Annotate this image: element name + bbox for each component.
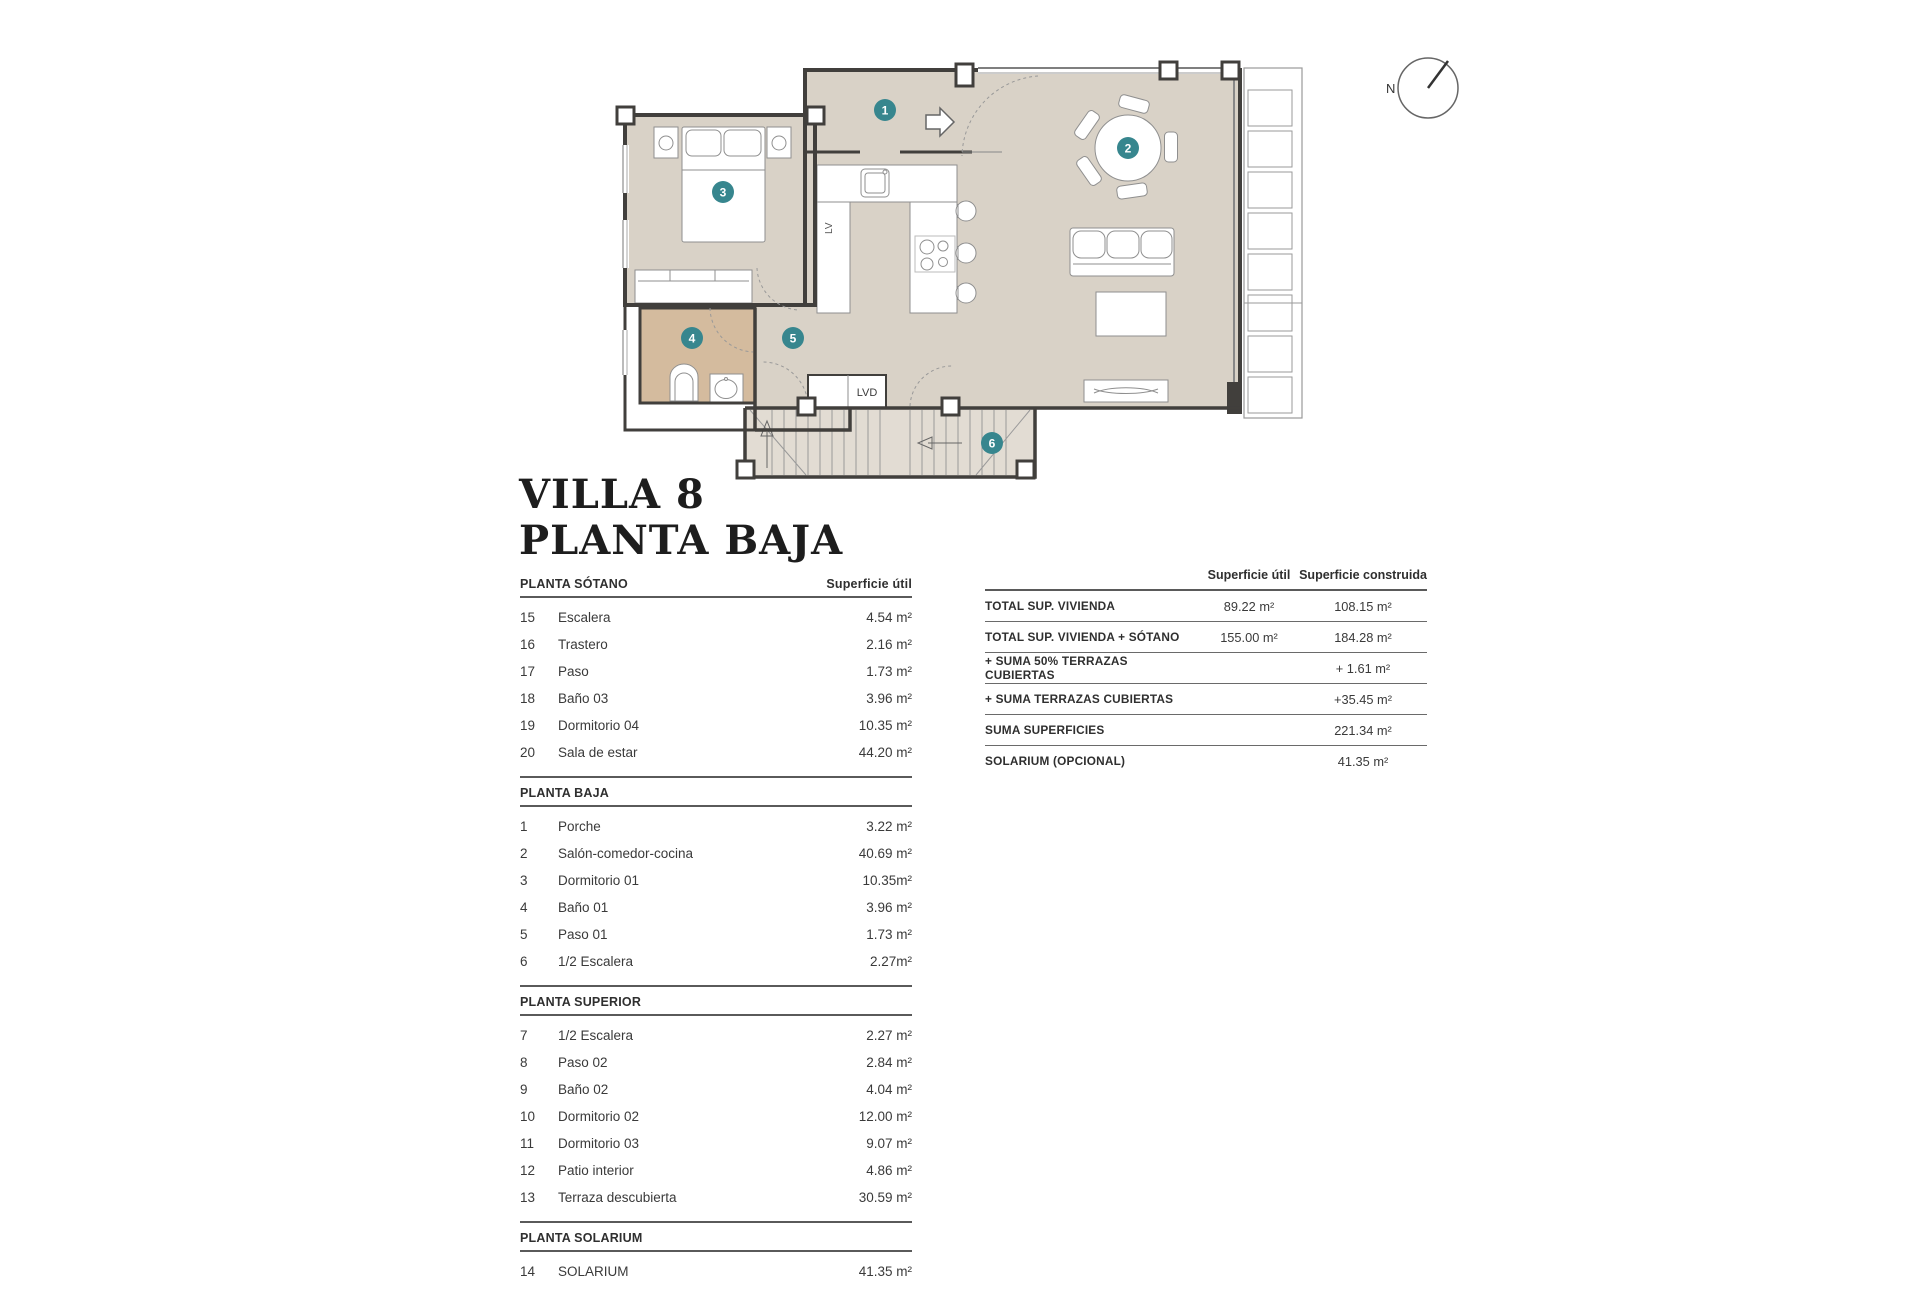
room-name: Baño 03: [558, 691, 866, 706]
title-line-2: PLANTA BAJA: [519, 518, 843, 564]
area-row: 15Escalera4.54 m²: [520, 604, 912, 631]
room-name: Trastero: [558, 637, 866, 652]
room-area: 9.07 m²: [866, 1136, 912, 1151]
compass-icon: N: [1386, 58, 1458, 118]
section-planta-sotano: PLANTA SÓTANOSuperficie útil15Escalera4.…: [520, 577, 912, 774]
room-area: 2.27 m²: [866, 1028, 912, 1043]
area-row: 9Baño 024.04 m²: [520, 1076, 912, 1103]
room-number: 5: [520, 927, 558, 942]
column-header-superficie-util: Superficie útil: [826, 577, 912, 591]
room-number: 11: [520, 1136, 558, 1151]
room-number: 4: [520, 900, 558, 915]
area-row: 71/2 Escalera2.27 m²: [520, 1022, 912, 1049]
room-area: 41.35 m²: [859, 1264, 912, 1279]
totals-label: + SUMA TERRAZAS CUBIERTAS: [985, 692, 1199, 706]
area-row: 17Paso1.73 m²: [520, 658, 912, 685]
area-row: 14SOLARIUM41.35 m²: [520, 1258, 912, 1285]
room-number: 14: [520, 1264, 558, 1279]
totals-table-header: Superficie útil Superficie construida: [985, 568, 1427, 591]
room-name: 1/2 Escalera: [558, 954, 870, 969]
room-name: Terraza descubierta: [558, 1190, 859, 1205]
page-title: VILLA 8 PLANTA BAJA: [519, 472, 843, 564]
value-superficie-construida: 221.34 m²: [1299, 723, 1427, 738]
section-planta-solarium: PLANTA SOLARIUM14SOLARIUM41.35 m²: [520, 1221, 912, 1293]
room-name: Sala de estar: [558, 745, 859, 760]
section-rows: 71/2 Escalera2.27 m²8Paso 022.84 m²9Baño…: [520, 1016, 912, 1219]
room-badge-1: 1: [874, 99, 896, 121]
room-number: 17: [520, 664, 558, 679]
room-badge-6: 6: [981, 432, 1003, 454]
section-header: PLANTA SOLARIUM: [520, 1223, 912, 1252]
room-badge-number: 3: [720, 186, 727, 200]
pillow: [686, 130, 721, 156]
room-area: 1.73 m²: [866, 664, 912, 679]
hob: [915, 236, 955, 272]
room-badge-number: 5: [790, 332, 797, 346]
section-rows: 1Porche3.22 m²2Salón-comedor-cocina40.69…: [520, 807, 912, 983]
room-area: 4.04 m²: [866, 1082, 912, 1097]
section-header: PLANTA SUPERIOR: [520, 987, 912, 1016]
room-name: Dormitorio 02: [558, 1109, 859, 1124]
totals-row-suma-superficies: SUMA SUPERFICIES221.34 m²: [985, 715, 1427, 746]
room-number: 16: [520, 637, 558, 652]
section-title: PLANTA BAJA: [520, 786, 609, 800]
totals-row-suma-50-terrazas-cubiertas: + SUMA 50% TERRAZAS CUBIERTAS+ 1.61 m²: [985, 653, 1427, 684]
room-number: 19: [520, 718, 558, 733]
area-row: 61/2 Escalera2.27m²: [520, 948, 912, 975]
room-name: Dormitorio 01: [558, 873, 862, 888]
room-name: Dormitorio 03: [558, 1136, 866, 1151]
room-number: 6: [520, 954, 558, 969]
nightstand-left: [654, 127, 678, 158]
area-row: 18Baño 033.96 m²: [520, 685, 912, 712]
room-name: Baño 01: [558, 900, 866, 915]
area-row: 5Paso 011.73 m²: [520, 921, 912, 948]
tv-console: [1084, 380, 1168, 402]
laundry: LVD: [808, 375, 886, 408]
laundry-label: LVD: [857, 387, 878, 399]
area-row: 2Salón-comedor-cocina40.69 m²: [520, 840, 912, 867]
totals-label: SOLARIUM (OPCIONAL): [985, 754, 1199, 768]
totals-row-total-sup-vivienda: TOTAL SUP. VIVIENDA89.22 m²108.15 m²: [985, 591, 1427, 622]
section-planta-baja: PLANTA BAJA1Porche3.22 m²2Salón-comedor-…: [520, 776, 912, 983]
section-title: PLANTA SÓTANO: [520, 577, 628, 591]
value-superficie-construida: + 1.61 m²: [1299, 661, 1427, 676]
value-superficie-util: 155.00 m²: [1199, 630, 1299, 645]
value-superficie-construida: +35.45 m²: [1299, 692, 1427, 707]
totals-label: TOTAL SUP. VIVIENDA + SÓTANO: [985, 630, 1199, 644]
section-header: PLANTA BAJA: [520, 778, 912, 807]
areas-table: PLANTA SÓTANOSuperficie útil15Escalera4.…: [520, 577, 912, 1293]
room-name: Patio interior: [558, 1163, 866, 1178]
room-name: Porche: [558, 819, 866, 834]
bar-stools: [956, 201, 976, 303]
section-title: PLANTA SUPERIOR: [520, 995, 641, 1009]
terrace-steps: [1244, 68, 1302, 418]
room-number: 13: [520, 1190, 558, 1205]
title-line-1: VILLA 8: [519, 472, 843, 518]
room-name: SOLARIUM: [558, 1264, 859, 1279]
coffee-table: [1096, 292, 1166, 336]
room-number: 12: [520, 1163, 558, 1178]
room-badge-3: 3: [712, 181, 734, 203]
totals-label: + SUMA 50% TERRAZAS CUBIERTAS: [985, 654, 1199, 682]
column-header-superficie-util: Superficie útil: [1199, 568, 1299, 582]
area-row: 4Baño 013.96 m²: [520, 894, 912, 921]
section-rows: 15Escalera4.54 m²16Trastero2.16 m²17Paso…: [520, 598, 912, 774]
nightstand-right: [767, 127, 791, 158]
value-superficie-util: 89.22 m²: [1199, 599, 1299, 614]
room-area: 4.54 m²: [866, 610, 912, 625]
section-title: PLANTA SOLARIUM: [520, 1231, 642, 1245]
areas-table-sections: PLANTA SÓTANOSuperficie útil15Escalera4.…: [520, 577, 912, 1293]
room-number: 15: [520, 610, 558, 625]
room-number: 7: [520, 1028, 558, 1043]
page: { "title": { "line1": "VILLA 8", "line2"…: [0, 0, 1920, 1280]
room-number: 20: [520, 745, 558, 760]
room-name: Escalera: [558, 610, 866, 625]
sofa: [1070, 228, 1174, 276]
room-badge-number: 1: [882, 104, 889, 118]
room-number: 3: [520, 873, 558, 888]
room-name: Baño 02: [558, 1082, 866, 1097]
room-number: 2: [520, 846, 558, 861]
room-area: 12.00 m²: [859, 1109, 912, 1124]
room-area: 1.73 m²: [866, 927, 912, 942]
dishwasher-label: LV: [824, 222, 835, 234]
room-number: 18: [520, 691, 558, 706]
room-badge-number: 6: [989, 437, 996, 451]
area-row: 10Dormitorio 0212.00 m²: [520, 1103, 912, 1130]
section-rows: 14SOLARIUM41.35 m²: [520, 1252, 912, 1293]
area-row: 12Patio interior4.86 m²: [520, 1157, 912, 1184]
totals-label: TOTAL SUP. VIVIENDA: [985, 599, 1199, 613]
room-name: Dormitorio 04: [558, 718, 859, 733]
totals-table: Superficie útil Superficie construida TO…: [985, 568, 1427, 776]
section-header: PLANTA SÓTANOSuperficie útil: [520, 577, 912, 598]
value-superficie-construida: 108.15 m²: [1299, 599, 1427, 614]
totals-label: SUMA SUPERFICIES: [985, 723, 1199, 737]
room-name: Paso 02: [558, 1055, 866, 1070]
totals-row-suma-terrazas-cubiertas: + SUMA TERRAZAS CUBIERTAS+35.45 m²: [985, 684, 1427, 715]
room-badge-number: 4: [689, 332, 696, 346]
wardrobe: [635, 270, 752, 303]
room-name: 1/2 Escalera: [558, 1028, 866, 1043]
room-area: 3.22 m²: [866, 819, 912, 834]
room-area: 10.35m²: [862, 873, 912, 888]
room-area: 2.27m²: [870, 954, 912, 969]
column-header-superficie-construida: Superficie construida: [1299, 568, 1427, 582]
area-row: 3Dormitorio 0110.35m²: [520, 867, 912, 894]
compass-label: N: [1386, 81, 1395, 96]
area-row: 8Paso 022.84 m²: [520, 1049, 912, 1076]
value-superficie-construida: 184.28 m²: [1299, 630, 1427, 645]
room-badge-number: 2: [1125, 142, 1132, 156]
area-row: 1Porche3.22 m²: [520, 813, 912, 840]
room-badge-4: 4: [681, 327, 703, 349]
area-row: 19Dormitorio 0410.35 m²: [520, 712, 912, 739]
room-area: 30.59 m²: [859, 1190, 912, 1205]
room-number: 1: [520, 819, 558, 834]
area-row: 11Dormitorio 039.07 m²: [520, 1130, 912, 1157]
room-area: 10.35 m²: [859, 718, 912, 733]
room-area: 4.86 m²: [866, 1163, 912, 1178]
room-area: 2.84 m²: [866, 1055, 912, 1070]
area-row: 20Sala de estar44.20 m²: [520, 739, 912, 766]
toilet: [670, 364, 698, 401]
room-name: Paso: [558, 664, 866, 679]
area-row: 16Trastero2.16 m²: [520, 631, 912, 658]
room-badge-5: 5: [782, 327, 804, 349]
value-superficie-construida: 41.35 m²: [1299, 754, 1427, 769]
room-number: 8: [520, 1055, 558, 1070]
room-badge-2: 2: [1117, 137, 1139, 159]
section-planta-superior: PLANTA SUPERIOR71/2 Escalera2.27 m²8Paso…: [520, 985, 912, 1219]
totals-row-solarium-opcional: SOLARIUM (OPCIONAL)41.35 m²: [985, 746, 1427, 776]
room-name: Paso 01: [558, 927, 866, 942]
room-area: 40.69 m²: [859, 846, 912, 861]
pillow: [724, 130, 761, 156]
room-number: 9: [520, 1082, 558, 1097]
totals-table-rows: TOTAL SUP. VIVIENDA89.22 m²108.15 m²TOTA…: [985, 591, 1427, 776]
room-area: 3.96 m²: [866, 691, 912, 706]
area-row: 13Terraza descubierta30.59 m²: [520, 1184, 912, 1211]
room-area: 44.20 m²: [859, 745, 912, 760]
room-name: Salón-comedor-cocina: [558, 846, 859, 861]
room-area: 2.16 m²: [866, 637, 912, 652]
room-area: 3.96 m²: [866, 900, 912, 915]
room-number: 10: [520, 1109, 558, 1124]
totals-row-total-sup-vivienda-sotano: TOTAL SUP. VIVIENDA + SÓTANO155.00 m²184…: [985, 622, 1427, 653]
floor-plan: LV: [610, 30, 1500, 510]
